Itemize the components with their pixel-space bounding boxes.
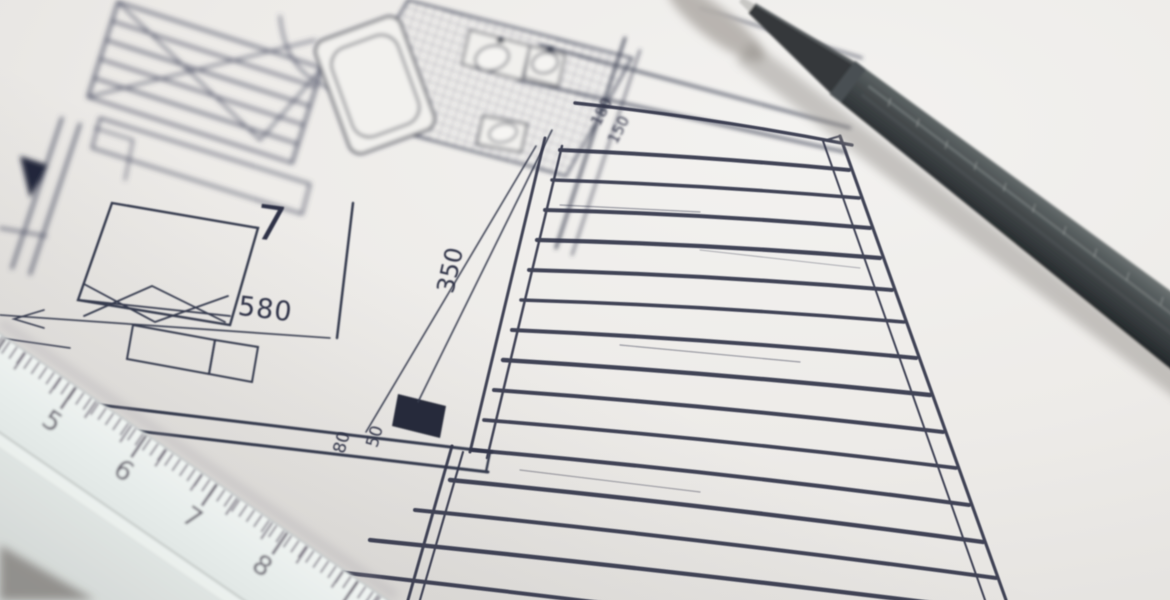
tap: [497, 38, 504, 43]
photo-architectural-plan: 180 150 7 580 350 80 50: [0, 0, 1170, 600]
dimension-label-580: 580: [236, 291, 294, 328]
photo-canvas: 180 150 7 580 350 80 50: [0, 0, 1170, 600]
